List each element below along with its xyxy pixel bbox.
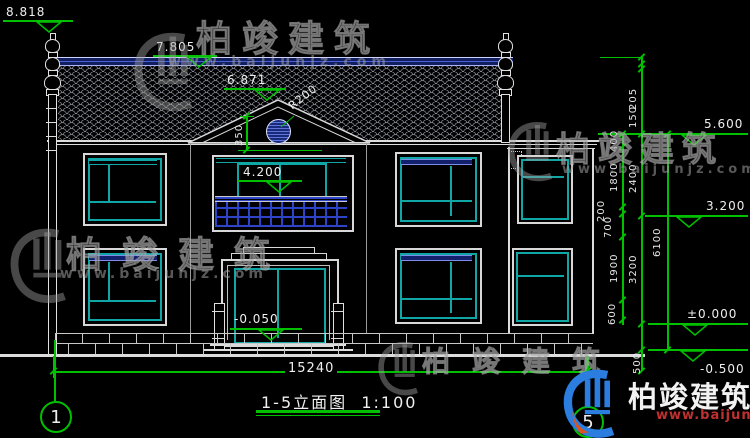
marker-triangle bbox=[36, 21, 62, 33]
marker-gable-apex: 6.871 bbox=[227, 73, 266, 87]
watermark-url: www.baijunjz.com bbox=[60, 266, 267, 282]
dim-label: 3200 bbox=[628, 255, 639, 284]
brand-logo-icon bbox=[552, 368, 626, 438]
marker-triangle bbox=[682, 324, 708, 336]
dim-label: 500 bbox=[632, 352, 643, 374]
title-underline-thin bbox=[256, 415, 380, 416]
elevation-drawing: R200 350 bbox=[0, 0, 750, 438]
marker-balcony-level: 4.200 bbox=[243, 165, 282, 179]
title-underline-thick bbox=[256, 410, 380, 413]
dim-350-bottom bbox=[238, 150, 322, 151]
watermark-url: www.baijunjz.com bbox=[562, 162, 750, 177]
marker-entry-level: -0.050 bbox=[234, 312, 279, 326]
dim-label: 600 bbox=[607, 303, 618, 325]
balcony-railing bbox=[215, 201, 347, 227]
marker-triangle bbox=[676, 216, 702, 228]
marker-finial-top: 8.818 bbox=[6, 5, 45, 19]
dim-label: 1900 bbox=[609, 254, 620, 283]
marker-triangle bbox=[266, 181, 292, 193]
dim-label: 6100 bbox=[652, 228, 663, 257]
overall-width-label: 15240 bbox=[285, 361, 337, 376]
watermark-url: www.baijunjz.com bbox=[168, 54, 391, 70]
brand-logo-icon bbox=[130, 30, 196, 112]
marker-triangle bbox=[254, 89, 280, 101]
dim-350-vline bbox=[246, 116, 248, 151]
dim-350-label: 350 bbox=[234, 124, 245, 146]
center-wall-right bbox=[366, 143, 367, 333]
axis-bubble-1: 1 bbox=[40, 401, 72, 433]
axis-number: 1 bbox=[50, 407, 61, 428]
brand-logo-icon bbox=[375, 340, 421, 396]
brand-logo-icon bbox=[6, 226, 70, 304]
marker-ground-floor: ±0.000 bbox=[687, 307, 737, 321]
marker-triangle bbox=[258, 329, 284, 341]
marker-triangle bbox=[680, 350, 706, 362]
marker-second-floor: 3.200 bbox=[706, 199, 745, 213]
dim-label: 700 bbox=[603, 216, 614, 238]
gable-round-window bbox=[266, 119, 291, 144]
brand-logo-icon bbox=[505, 120, 555, 182]
watermark-url: www.baijunjz.com bbox=[656, 408, 750, 423]
